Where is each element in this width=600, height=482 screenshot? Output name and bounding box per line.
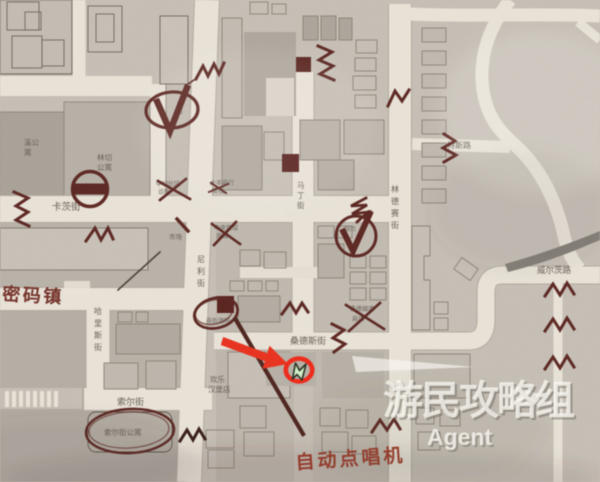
svg-text:Agent: Agent bbox=[427, 424, 493, 450]
svg-text:游民攻略组: 游民攻略组 bbox=[383, 379, 574, 423]
